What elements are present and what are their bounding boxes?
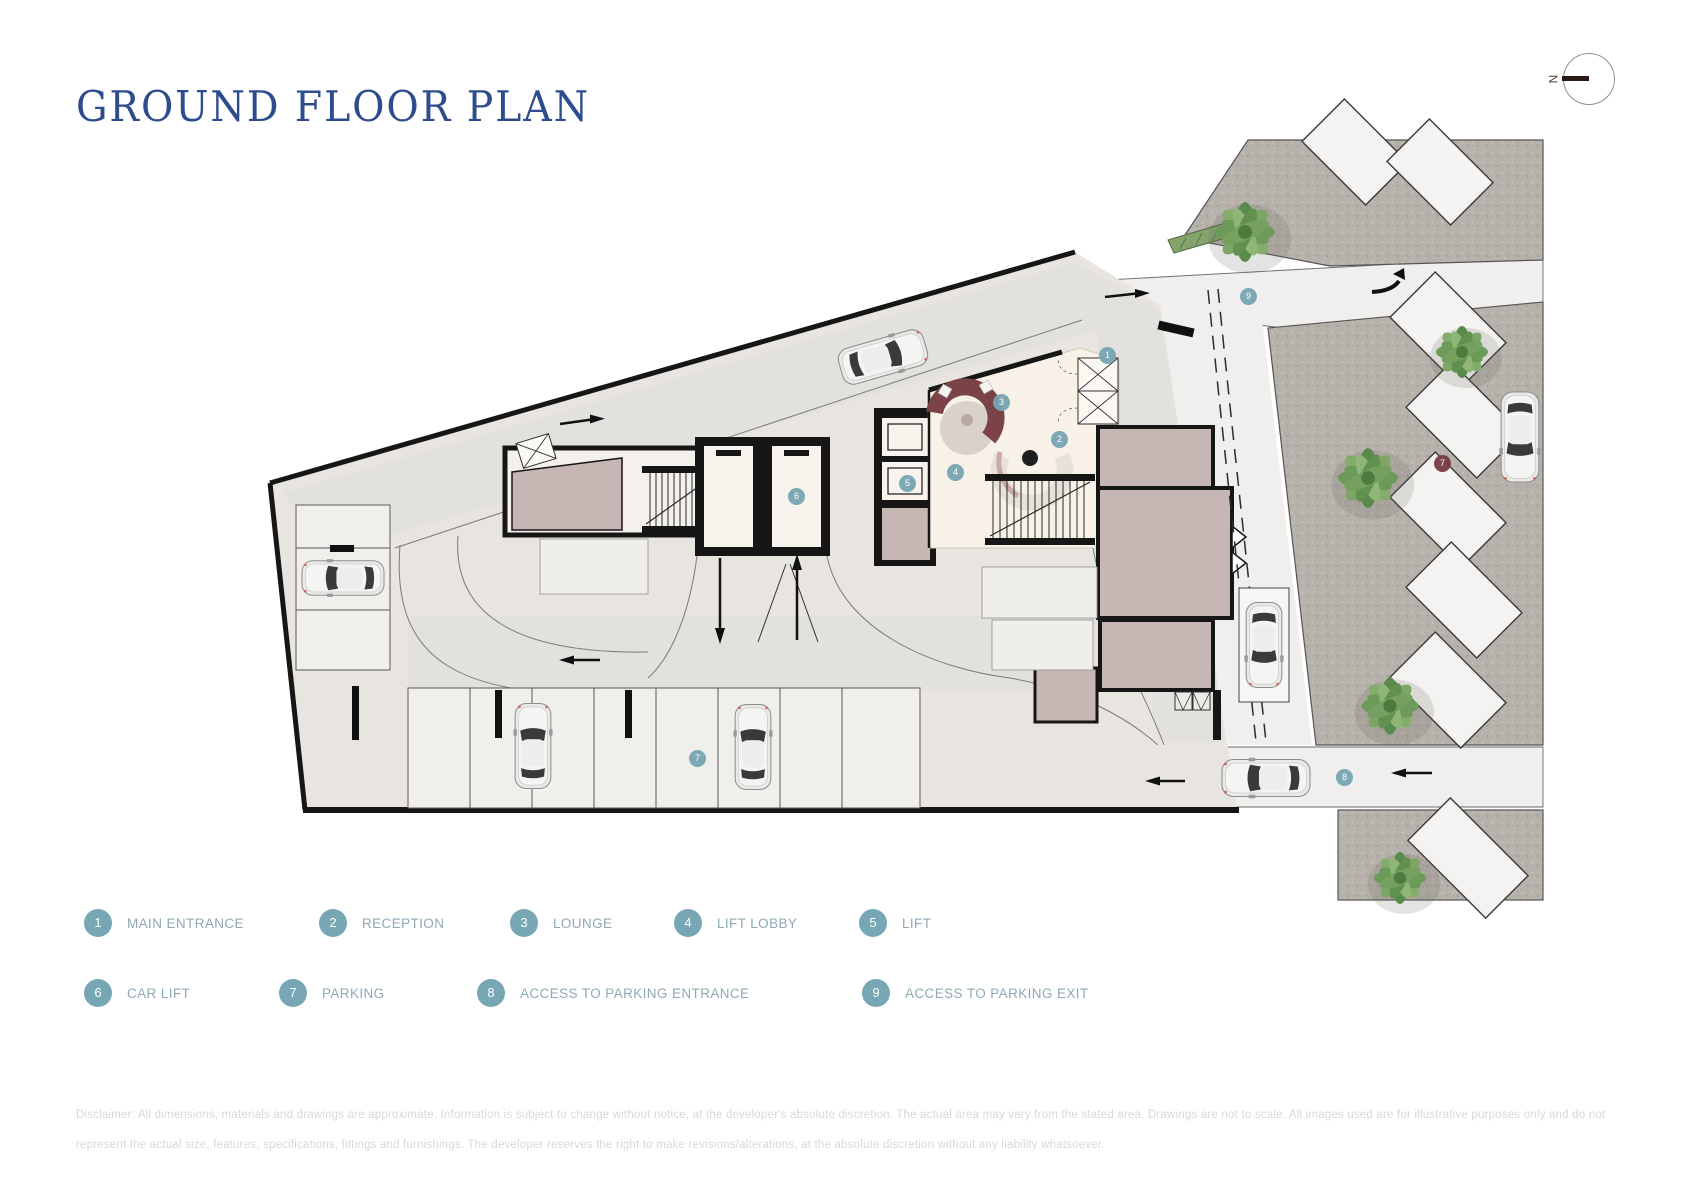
legend-item-parking-entrance: 8 ACCESS TO PARKING ENTRANCE xyxy=(477,979,749,1007)
legend-circle-1: 1 xyxy=(84,909,112,937)
legend-label-parking: PARKING xyxy=(322,986,385,1001)
plan-marker-7-street: 7 xyxy=(1434,455,1451,472)
legend-item-car-lift: 6 CAR LIFT xyxy=(84,979,190,1007)
plan-marker-6: 6 xyxy=(788,488,805,505)
disclaimer-line-2: represent the actual size, features, spe… xyxy=(76,1130,1636,1160)
legend-circle-3: 3 xyxy=(510,909,538,937)
plan-marker-5: 5 xyxy=(899,475,916,492)
legend-circle-8: 8 xyxy=(477,979,505,1007)
legend-circle-9: 9 xyxy=(862,979,890,1007)
plan-marker-9: 9 xyxy=(1240,288,1257,305)
legend-item-parking-exit: 9 ACCESS TO PARKING EXIT xyxy=(862,979,1089,1007)
legend-circle-2: 2 xyxy=(319,909,347,937)
legend-item-parking: 7 PARKING xyxy=(279,979,385,1007)
legend-label-lift-lobby: LIFT LOBBY xyxy=(717,916,797,931)
legend-label-main-entrance: MAIN ENTRANCE xyxy=(127,916,244,931)
plan-marker-7: 7 xyxy=(689,750,706,767)
legend-item-reception: 2 RECEPTION xyxy=(319,909,444,937)
plan-marker-4: 4 xyxy=(947,464,964,481)
legend-label-car-lift: CAR LIFT xyxy=(127,986,190,1001)
legend-label-parking-exit: ACCESS TO PARKING EXIT xyxy=(905,986,1089,1001)
legend-item-lift: 5 LIFT xyxy=(859,909,931,937)
plan-marker-2: 2 xyxy=(1051,431,1068,448)
floor-plan-drawing xyxy=(0,0,1700,1200)
legend-label-parking-entrance: ACCESS TO PARKING ENTRANCE xyxy=(520,986,749,1001)
disclaimer: Disclaimer: All dimensions, materials an… xyxy=(76,1100,1636,1160)
legend-label-lounge: LOUNGE xyxy=(553,916,612,931)
legend-circle-7: 7 xyxy=(279,979,307,1007)
legend-circle-5: 5 xyxy=(859,909,887,937)
disclaimer-line-1: Disclaimer: All dimensions, materials an… xyxy=(76,1100,1636,1130)
plan-marker-1: 1 xyxy=(1099,347,1116,364)
plan-marker-3: 3 xyxy=(993,394,1010,411)
legend-circle-6: 6 xyxy=(84,979,112,1007)
parking-bays-bottom xyxy=(352,686,920,808)
legend-item-lounge: 3 LOUNGE xyxy=(510,909,612,937)
legend-item-lift-lobby: 4 LIFT LOBBY xyxy=(674,909,797,937)
legend-label-reception: RECEPTION xyxy=(362,916,444,931)
legend-item-main-entrance: 1 MAIN ENTRANCE xyxy=(84,909,244,937)
ground-floor-plan-page: { "header": { "title": "GROUND FLOOR PLA… xyxy=(0,0,1700,1200)
legend-circle-4: 4 xyxy=(674,909,702,937)
legend-label-lift: LIFT xyxy=(902,916,931,931)
plan-marker-8: 8 xyxy=(1336,769,1353,786)
